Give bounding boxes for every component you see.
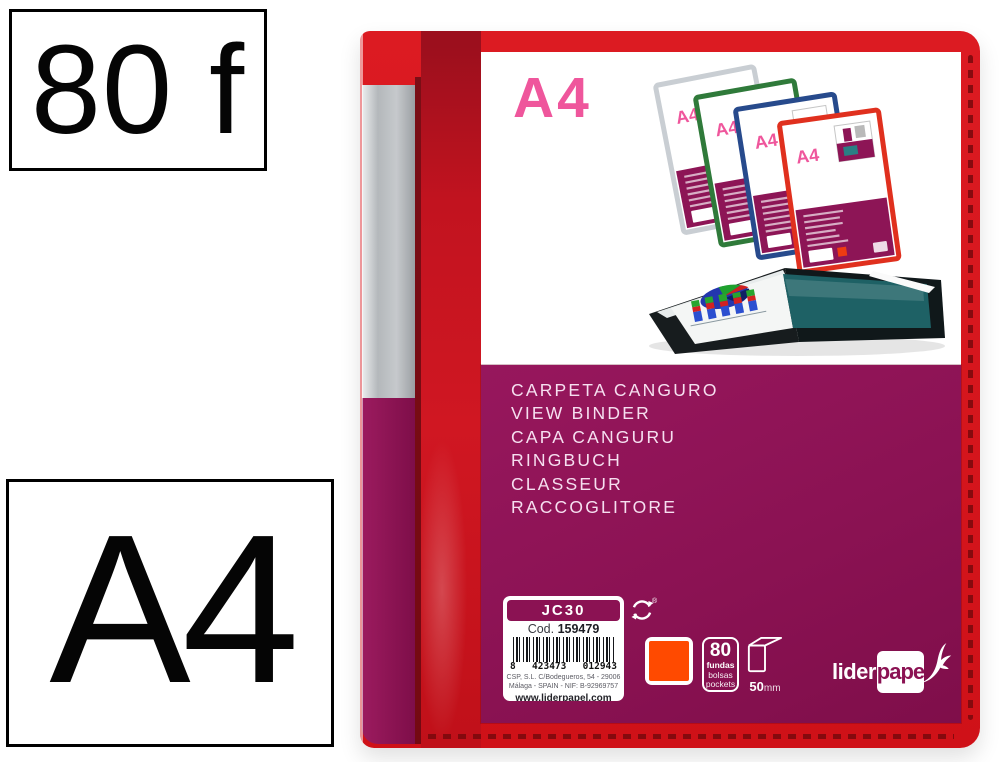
product-name-languages: CARPETA CANGURO VIEW BINDER CAPA CANGURU… [511,379,719,519]
mini-thumbnail [834,121,875,162]
barcode-label: JC30 Cod. 159479 8 423473 012943 CSP, S.… [503,596,624,701]
mini-format-label: A4 [795,145,821,168]
lang-line: RACCOGLITORE [511,496,719,519]
open-binder [649,268,945,356]
pockets-count-box: 80 fundas bolsas pockets [702,637,739,692]
reference-code: Cod. 159479 [503,622,624,636]
stitched-edge-bottom [428,734,954,739]
brand-text-lider: lider [832,659,876,685]
spine-width-spec: 50mm [742,636,788,695]
stitched-edge-right [968,55,973,720]
format-badge: A4 [6,479,334,747]
sheets-count-badge: 80 f [9,9,267,171]
pockets-count: 80 [704,641,737,661]
mini-binder-red: A4 [779,110,899,272]
barcode-digits: 8 423473 012943 [503,661,624,672]
recyclable-icon: ® [630,596,658,624]
barcode-bars [513,637,614,662]
registered-mark: ® [652,597,658,605]
company-address: CSP, S.L. C/Bodegueros, 54 - 29006 Málag… [503,674,624,691]
lang-line: VIEW BINDER [511,402,719,425]
product-photo: A4 A4 [637,56,951,362]
spine-width-label: 50mm [742,680,788,695]
lang-line: CLASSEUR [511,473,719,496]
code-number: 159479 [558,622,600,636]
cover-insert-top: A4 A4 [481,52,961,365]
sheets-count-text: 80 f [31,27,245,153]
binder-spine [360,31,417,748]
spine-highlight [360,33,363,746]
model-code: JC30 [507,600,620,621]
brand-logo: lider pape [832,651,952,693]
cover-insert-bottom: CARPETA CANGURO VIEW BINDER CAPA CANGURU… [481,365,961,723]
color-swatch-orange [649,641,689,681]
website-url: www.liderpapel.com [503,693,624,701]
binder-product: A4 A4 [360,31,980,748]
brand-leaf-icon [918,638,952,690]
spine-width-icon [745,636,785,674]
lang-line: CAPA CANGURU [511,426,719,449]
code-prefix: Cod. [528,622,554,636]
mini-format-label: A4 [753,130,779,153]
pockets-word-en: pockets [704,680,737,690]
lang-line: CARPETA CANGURO [511,379,719,402]
color-swatch [645,637,693,685]
lang-line: RINGBUCH [511,449,719,472]
product-page: 80 f A4 A4 [0,0,1000,762]
cover-edge-strip [421,31,481,748]
brand-box: pape [877,651,924,693]
format-text: A4 [49,503,290,715]
spine-lower [362,398,415,744]
cover-format-label: A4 [513,70,592,127]
spine-label-card [362,85,415,398]
